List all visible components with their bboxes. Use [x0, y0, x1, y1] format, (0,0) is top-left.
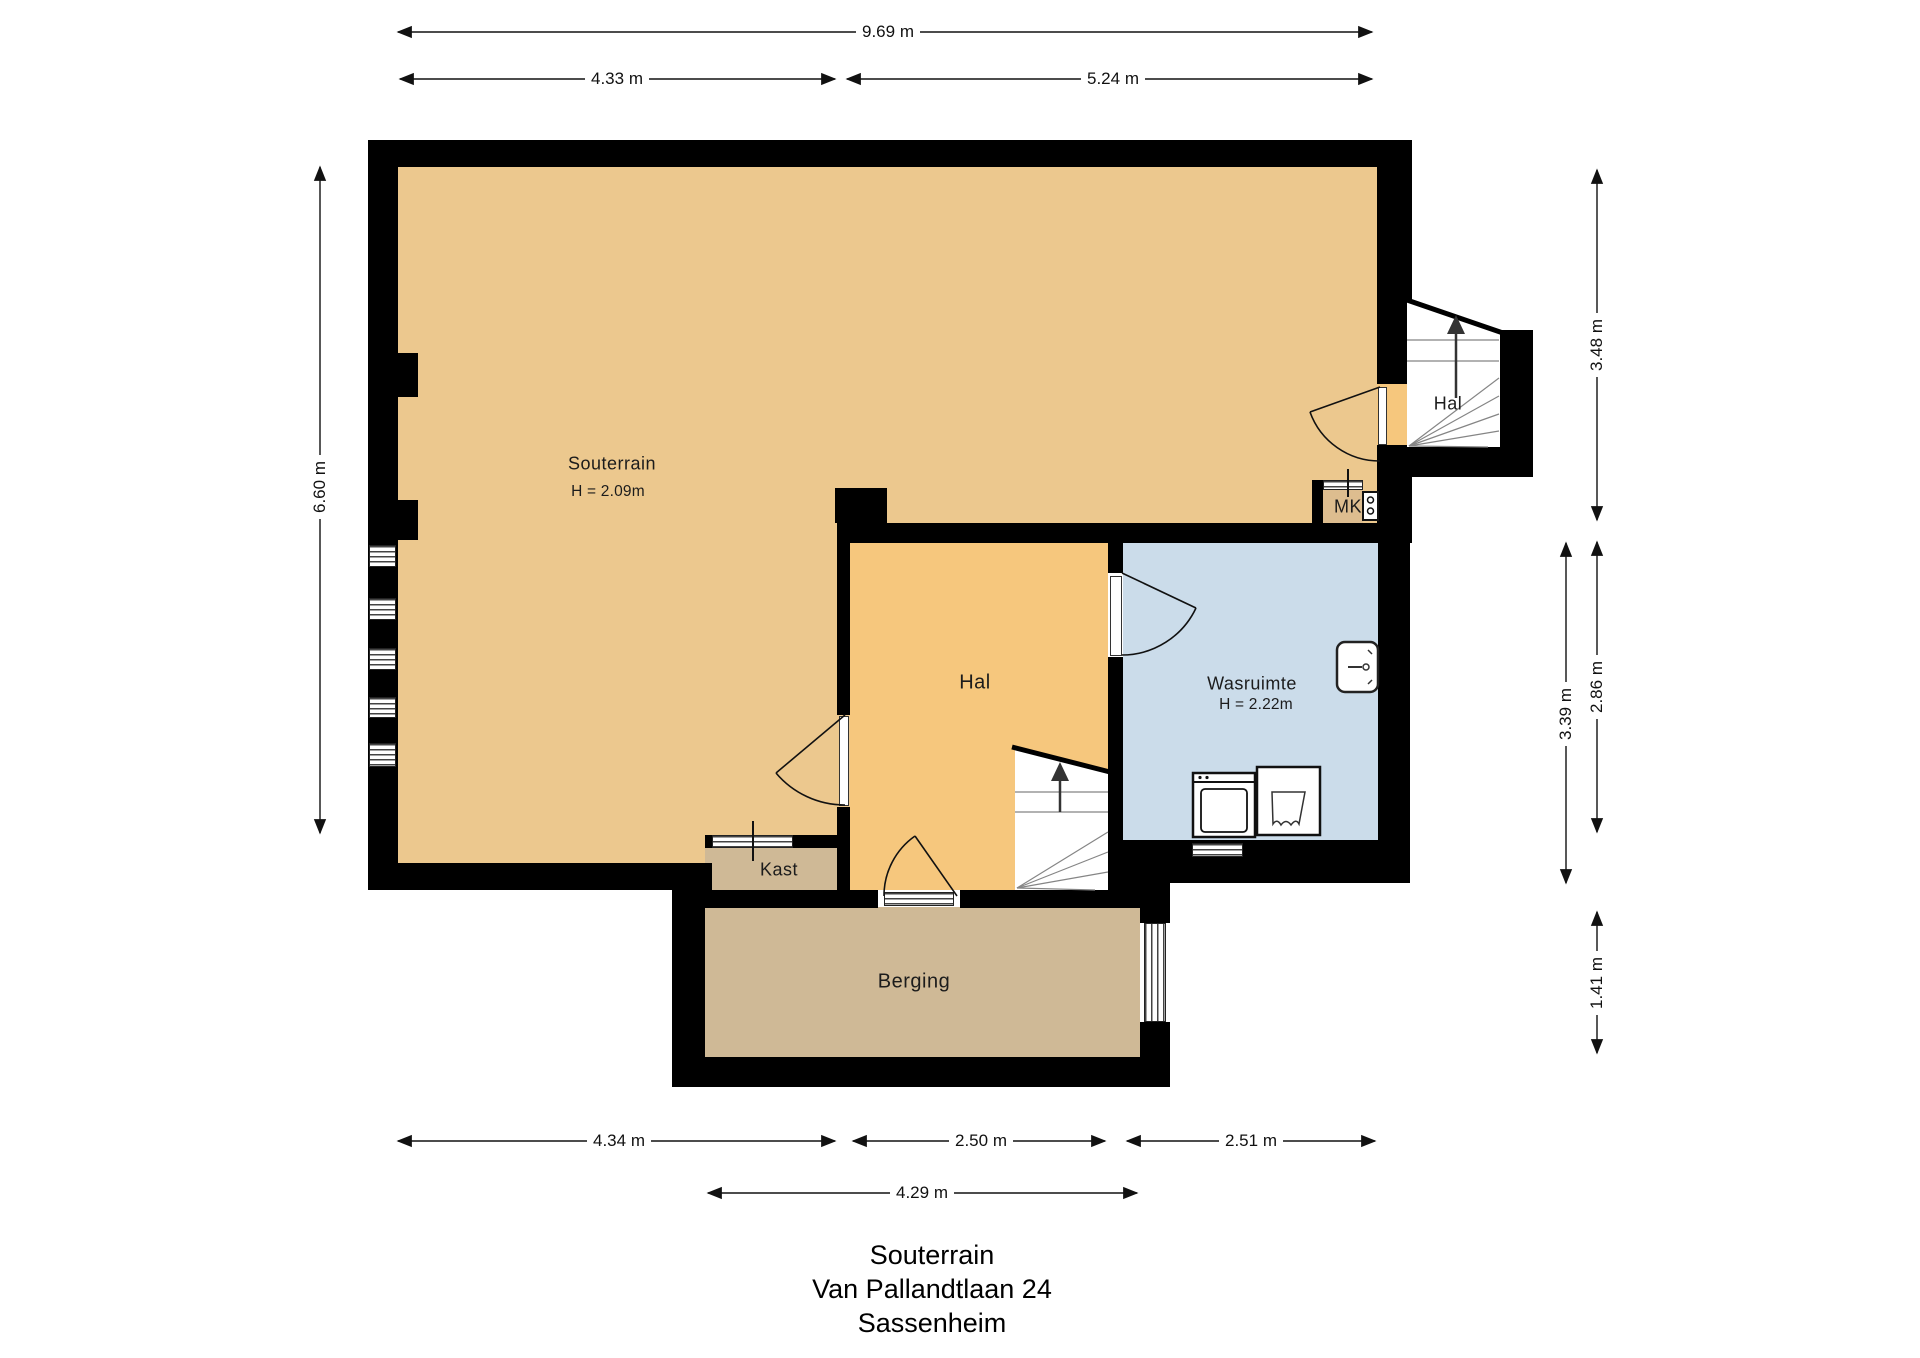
room-souterrain	[398, 167, 1377, 523]
room-label-mk: MK	[1334, 497, 1362, 518]
dimension-label: 2.86 m	[1587, 655, 1607, 719]
dimension-label: 9.69 m	[856, 22, 920, 42]
dimension-label: 2.51 m	[1219, 1131, 1283, 1151]
wall	[1108, 840, 1192, 883]
dimension-label: 2.50 m	[949, 1131, 1013, 1151]
wall	[835, 488, 887, 523]
stairs-top-right	[1404, 299, 1503, 447]
room-hal-center	[850, 543, 1108, 890]
door-hal-wasruimte	[1110, 576, 1122, 656]
wall	[837, 807, 850, 890]
wall	[398, 353, 418, 397]
wall	[1140, 1022, 1170, 1057]
stairs-up-arrow-icon	[1447, 315, 1465, 398]
room-label-hal-top: Hal	[1434, 394, 1463, 415]
dimension-label: 1.41 m	[1587, 951, 1607, 1015]
window-berging	[1144, 923, 1166, 1022]
wall	[960, 890, 1170, 908]
dimension-label: 4.34 m	[587, 1131, 651, 1151]
window-wasruimte	[1192, 843, 1243, 857]
wall	[368, 863, 712, 890]
window-kast	[712, 835, 793, 848]
title-line-address: Van Pallandtlaan 24	[812, 1272, 1052, 1306]
window	[369, 743, 396, 767]
title-line-floor: Souterrain	[812, 1238, 1052, 1272]
door-threshold-berging	[884, 892, 954, 906]
room-height-souterrain: H = 2.09m	[571, 483, 645, 501]
wall	[1243, 840, 1410, 883]
wall	[672, 1057, 1170, 1087]
plan-title: Souterrain Van Pallandtlaan 24 Sassenhei…	[812, 1238, 1052, 1340]
dimension-label: 4.29 m	[890, 1183, 954, 1203]
title-line-city: Sassenheim	[812, 1306, 1052, 1340]
window	[369, 648, 396, 670]
room-label-souterrain: Souterrain	[568, 454, 656, 475]
wall	[672, 890, 878, 908]
wall	[1140, 907, 1170, 923]
wall	[793, 835, 837, 848]
dimension-label: 3.39 m	[1556, 682, 1576, 746]
wall	[705, 835, 712, 848]
wall	[1108, 543, 1123, 573]
window	[369, 598, 396, 620]
dimension-label: 4.33 m	[585, 69, 649, 89]
floorplan-canvas: Souterrain H = 2.09m Hal MK Hal Wasruimt…	[0, 0, 1920, 1358]
wall	[1407, 447, 1533, 477]
door-souterrain-hal	[839, 716, 849, 806]
room-label-wasruimte: Wasruimte	[1207, 674, 1297, 695]
wall	[1378, 542, 1410, 883]
room-label-hal-center: Hal	[959, 672, 991, 695]
window	[369, 545, 396, 567]
window	[369, 697, 396, 718]
dimension-label: 3.48 m	[1587, 313, 1607, 377]
wall	[672, 890, 705, 1057]
wall	[837, 523, 1412, 543]
wall	[1312, 480, 1323, 523]
vent-mk	[1323, 480, 1363, 490]
wall	[368, 140, 1412, 167]
door-souterrain-stairhal	[1378, 387, 1387, 445]
wall	[837, 523, 850, 715]
room-label-kast: Kast	[760, 860, 798, 881]
room-souterrain-lower	[398, 523, 850, 863]
wall	[1192, 857, 1243, 883]
dimension-label: 5.24 m	[1081, 69, 1145, 89]
wall	[1377, 167, 1412, 384]
room-label-berging: Berging	[878, 971, 950, 994]
room-height-wasruimte: H = 2.22m	[1219, 696, 1293, 714]
wall	[398, 500, 418, 540]
wall	[1108, 883, 1170, 891]
dimension-label: 6.60 m	[310, 455, 330, 519]
